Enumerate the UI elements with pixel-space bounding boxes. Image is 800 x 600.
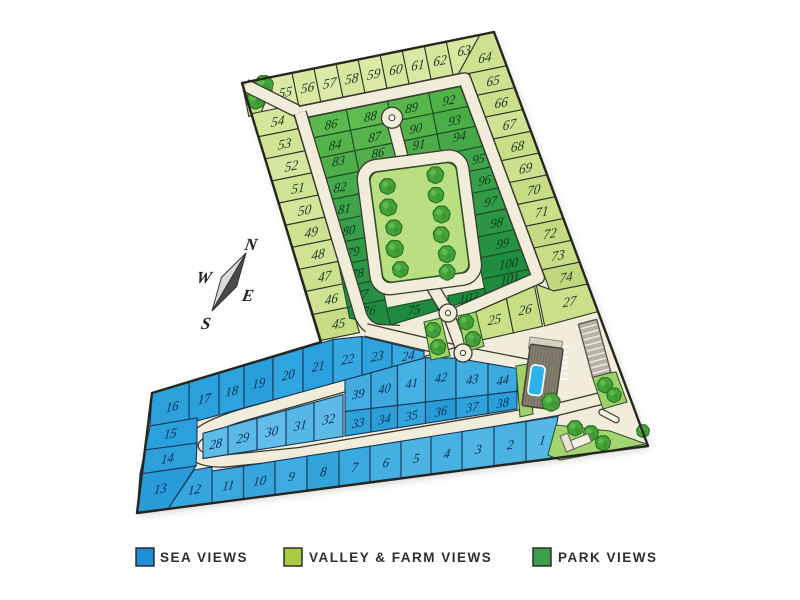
svg-text:93: 93 bbox=[448, 111, 462, 129]
svg-text:50: 50 bbox=[298, 201, 313, 219]
svg-text:53: 53 bbox=[278, 135, 293, 153]
svg-text:70: 70 bbox=[527, 181, 542, 199]
svg-text:16: 16 bbox=[165, 397, 179, 415]
svg-text:48: 48 bbox=[311, 245, 326, 263]
svg-text:88: 88 bbox=[363, 107, 377, 125]
svg-text:94: 94 bbox=[453, 127, 467, 145]
svg-text:73: 73 bbox=[551, 246, 566, 264]
svg-text:67: 67 bbox=[502, 115, 517, 133]
svg-text:18: 18 bbox=[225, 382, 239, 400]
svg-text:95: 95 bbox=[472, 150, 486, 168]
svg-text:86: 86 bbox=[324, 115, 338, 133]
svg-text:15: 15 bbox=[163, 425, 178, 443]
svg-text:27: 27 bbox=[562, 292, 577, 310]
svg-text:35: 35 bbox=[404, 407, 418, 424]
svg-text:82: 82 bbox=[333, 178, 347, 196]
svg-text:40: 40 bbox=[378, 380, 392, 397]
svg-text:13: 13 bbox=[153, 480, 168, 498]
svg-text:57: 57 bbox=[323, 74, 338, 92]
svg-text:92: 92 bbox=[442, 91, 456, 109]
svg-text:30: 30 bbox=[264, 422, 279, 440]
svg-text:58: 58 bbox=[345, 70, 360, 88]
svg-text:11: 11 bbox=[221, 477, 235, 494]
svg-text:61: 61 bbox=[411, 56, 425, 74]
svg-text:66: 66 bbox=[494, 94, 509, 112]
svg-text:25: 25 bbox=[487, 310, 502, 328]
svg-text:71: 71 bbox=[535, 203, 549, 221]
svg-text:59: 59 bbox=[367, 65, 382, 83]
svg-text:90: 90 bbox=[409, 119, 423, 137]
svg-text:41: 41 bbox=[405, 375, 418, 392]
svg-text:20: 20 bbox=[281, 366, 295, 384]
svg-text:19: 19 bbox=[252, 374, 266, 392]
svg-text:64: 64 bbox=[478, 49, 493, 67]
svg-text:56: 56 bbox=[301, 79, 316, 97]
svg-text:32: 32 bbox=[321, 410, 336, 428]
svg-text:69: 69 bbox=[518, 159, 533, 177]
svg-text:81: 81 bbox=[337, 200, 351, 218]
svg-text:22: 22 bbox=[341, 350, 355, 368]
svg-text:21: 21 bbox=[311, 357, 325, 375]
svg-text:43: 43 bbox=[466, 371, 479, 388]
svg-text:23: 23 bbox=[370, 347, 384, 365]
svg-text:42: 42 bbox=[434, 369, 448, 386]
svg-text:SEA VIEWS: SEA VIEWS bbox=[160, 550, 248, 565]
svg-text:45: 45 bbox=[332, 315, 347, 333]
svg-text:83: 83 bbox=[332, 152, 346, 170]
svg-text:75: 75 bbox=[407, 301, 421, 319]
svg-text:49: 49 bbox=[304, 223, 319, 241]
svg-text:54: 54 bbox=[271, 112, 286, 130]
svg-text:33: 33 bbox=[351, 415, 365, 432]
svg-text:51: 51 bbox=[291, 179, 305, 197]
svg-text:62: 62 bbox=[433, 52, 448, 70]
svg-text:14: 14 bbox=[160, 450, 175, 468]
svg-text:91: 91 bbox=[412, 136, 426, 154]
svg-text:98: 98 bbox=[490, 214, 504, 232]
svg-text:99: 99 bbox=[496, 234, 510, 252]
svg-text:31: 31 bbox=[292, 416, 307, 434]
svg-text:PARK VIEWS: PARK VIEWS bbox=[558, 550, 658, 565]
svg-text:29: 29 bbox=[236, 429, 250, 447]
svg-text:72: 72 bbox=[543, 225, 558, 243]
svg-text:60: 60 bbox=[389, 61, 404, 79]
svg-text:84: 84 bbox=[328, 136, 342, 154]
svg-text:VALLEY & FARM VIEWS: VALLEY & FARM VIEWS bbox=[309, 550, 492, 565]
svg-text:28: 28 bbox=[209, 435, 223, 453]
svg-text:12: 12 bbox=[187, 481, 202, 499]
svg-text:65: 65 bbox=[486, 72, 501, 90]
svg-text:46: 46 bbox=[324, 290, 339, 308]
svg-text:68: 68 bbox=[510, 137, 525, 155]
svg-text:96: 96 bbox=[478, 171, 492, 189]
svg-text:26: 26 bbox=[518, 301, 533, 319]
svg-text:10: 10 bbox=[252, 472, 267, 489]
svg-text:74: 74 bbox=[559, 268, 574, 286]
svg-text:89: 89 bbox=[405, 99, 419, 117]
svg-text:52: 52 bbox=[284, 157, 299, 175]
svg-text:47: 47 bbox=[317, 267, 332, 285]
svg-text:44: 44 bbox=[496, 372, 510, 389]
